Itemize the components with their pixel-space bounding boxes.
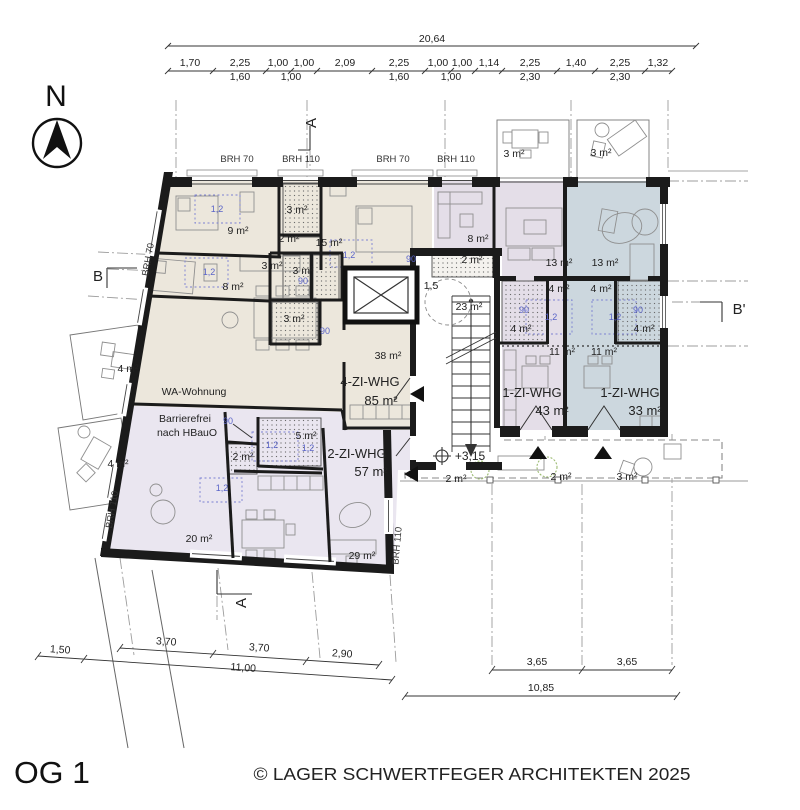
dim-top-sub: 1,60 <box>230 71 251 83</box>
sill-height-label: BRH 110 <box>437 154 475 165</box>
turning-radius-label: 1,5 <box>424 280 439 292</box>
dim-top: 2,25 <box>230 57 251 69</box>
section-marker-a-bottom: A <box>233 598 250 608</box>
dim-top-overall: 20,64 <box>419 33 445 45</box>
dim-bottom-left-overall: 11,00 <box>230 661 256 675</box>
apartment-label: 4-ZI-WHG <box>340 374 399 389</box>
balcony-area: 3 m² <box>504 148 526 160</box>
balcony-area: 4 m² <box>108 458 130 470</box>
clearance-label: 1,2 <box>609 312 622 322</box>
apartment-area: 33 m² <box>628 403 662 418</box>
apartment-label-wa: WA-Wohnung <box>162 386 227 398</box>
page-title: OG 1 <box>14 755 90 790</box>
dim-bottom-right-overall: 10,85 <box>528 682 554 694</box>
room-area: 13 m² <box>546 257 573 269</box>
room-area: 20 m² <box>186 533 213 545</box>
room-area: 4 m² <box>634 323 656 335</box>
room-area: 38 m² <box>375 350 402 362</box>
sill-height-label: BRH 110 <box>390 526 404 565</box>
section-marker-b-prime: B' <box>733 301 746 318</box>
site-boundary-lines <box>95 558 184 748</box>
floor-plan-page: 20,641,702,251,001,002,092,251,001,001,1… <box>0 0 800 810</box>
dim-bottom-right: 3,65 <box>617 656 638 668</box>
dim-top: 1,00 <box>268 57 289 69</box>
dim-top: 1,00 <box>294 57 315 69</box>
dim-bottom-left: 2,90 <box>332 647 353 660</box>
balcony-top-2 <box>577 120 649 178</box>
dim-top-sub: 1,00 <box>281 71 302 83</box>
barrier-free-note: Barrierefrei <box>159 413 211 425</box>
apartment-label: 1-ZI-WHG <box>600 385 659 400</box>
room-area: 8 m² <box>468 233 490 245</box>
room-area: 3 m² <box>262 260 284 272</box>
dim-top: 1,00 <box>452 57 473 69</box>
room-area: 3 m² <box>284 313 306 325</box>
balcony-area: 4 m² <box>118 363 140 375</box>
sill-height-label: BRH 110 <box>282 154 320 165</box>
room-area: 4 m² <box>549 283 571 295</box>
room-area: 4 m² <box>591 283 613 295</box>
room-area: 29 m² <box>349 550 376 562</box>
clearance-label: 1,2 <box>302 443 315 453</box>
dim-top: 1,70 <box>180 57 201 69</box>
copyright: © LAGER SCHWERTFEGER ARCHITEKTEN 2025 <box>254 764 691 784</box>
apartment-area: 43 m² <box>535 403 569 418</box>
room-area: 2 m² <box>233 451 255 463</box>
walkway-area: 2 m² <box>446 473 468 485</box>
sill-height-label: BRH 70 <box>376 154 409 165</box>
door-width-label: 90 <box>633 305 643 315</box>
dim-top: 2,09 <box>335 57 356 69</box>
section-marker-b: B <box>93 268 103 285</box>
room-area: 13 m² <box>592 257 619 269</box>
dim-top-sub: 2,30 <box>520 71 541 83</box>
clearance-label: 1,2 <box>343 250 356 260</box>
apartment-area: 85 m² <box>364 393 398 408</box>
dim-top-sub: 2,30 <box>610 71 631 83</box>
dim-top-sub: 1,60 <box>389 71 410 83</box>
north-label: N <box>45 80 67 113</box>
dim-top: 1,00 <box>428 57 449 69</box>
dim-top: 2,25 <box>520 57 541 69</box>
walkway-area: 2 m² <box>551 471 573 483</box>
room-area: 23 m² <box>456 301 483 313</box>
dim-top: 1,40 <box>566 57 587 69</box>
clearance-label: 1,2 <box>216 483 229 493</box>
walkway-area: 3 m² <box>617 471 639 483</box>
door-width-label: 90 <box>406 254 416 264</box>
dim-bottom-left: 1,50 <box>50 643 71 656</box>
room-area: 15 m² <box>316 237 343 249</box>
balcony-area: 3 m² <box>591 147 613 159</box>
clearance-label: 1,2 <box>203 267 216 277</box>
dim-top: 2,25 <box>610 57 631 69</box>
level-annotation: +3,15 <box>455 449 486 463</box>
room-area: 5 m² <box>296 430 318 442</box>
room-area: 2 m² <box>279 233 301 245</box>
section-marker-a-top: A <box>303 118 320 128</box>
dim-top: 1,32 <box>648 57 669 69</box>
elevator-icon <box>345 268 417 322</box>
dim-top-sub: 1,00 <box>441 71 462 83</box>
clearance-label: 1,2 <box>211 204 224 214</box>
door-width-label: 90 <box>223 416 233 426</box>
door-width-label: 90 <box>320 326 330 336</box>
clearance-label: 1,2 <box>545 312 558 322</box>
room-area: 11 m² <box>549 346 576 358</box>
apartment-label: 1-ZI-WHG <box>502 385 561 400</box>
north-arrow-icon <box>33 119 81 167</box>
dim-top: 1,14 <box>479 57 500 69</box>
door-width-label: 90 <box>519 305 529 315</box>
dim-bottom-left: 3,70 <box>249 641 270 654</box>
room-area: 11 m² <box>591 346 618 358</box>
barrier-free-note: nach HBauO <box>157 427 217 439</box>
door-width-label: 90 <box>298 276 308 286</box>
room-area: 3 m² <box>287 204 309 216</box>
dim-bottom-left: 3,70 <box>156 635 177 648</box>
room-area: 2 m² <box>462 254 484 266</box>
apartment-label: 2-ZI-WHG <box>327 446 386 461</box>
clearance-label: 1,2 <box>266 440 279 450</box>
sill-height-label: BRH 70 <box>220 154 253 165</box>
floor-plan-canvas: 20,641,702,251,001,002,092,251,001,001,1… <box>0 0 800 810</box>
room-area: 4 m² <box>511 323 533 335</box>
dim-top: 2,25 <box>389 57 410 69</box>
apartment-area: 57 m² <box>354 464 388 479</box>
dim-bottom-right: 3,65 <box>527 656 548 668</box>
room-area: 8 m² <box>223 281 245 293</box>
room-area: 9 m² <box>228 225 250 237</box>
